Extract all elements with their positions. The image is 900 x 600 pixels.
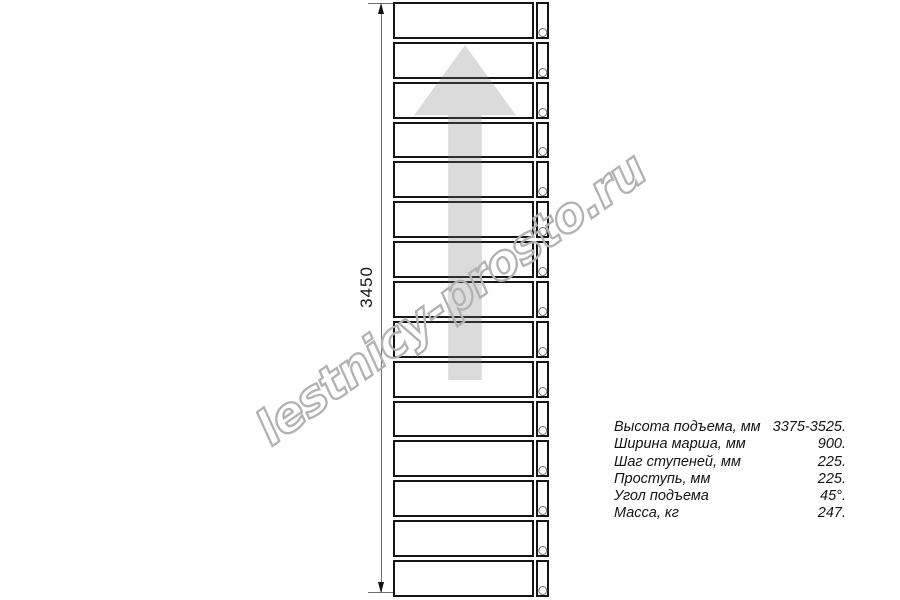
stringer-cell	[536, 520, 549, 557]
stairs-plan	[393, 2, 534, 597]
stringer-cell	[536, 480, 549, 517]
spec-value: 225.	[818, 454, 846, 471]
step-row	[393, 281, 534, 318]
stair-drawing-canvas: 3450 lestnicy-prosto.ru Высота подъема, …	[0, 0, 900, 600]
specs-table: Высота подъема, мм 3375-3525. Ширина мар…	[614, 419, 846, 523]
stringer-cell	[536, 2, 549, 39]
step-row	[393, 161, 534, 198]
spec-row: Ширина марша, мм 900.	[614, 436, 846, 453]
spec-row: Проступь, мм 225.	[614, 471, 846, 488]
stringer-cell	[536, 440, 549, 477]
step-row	[393, 440, 534, 477]
step-row	[393, 42, 534, 79]
stringer-cell	[536, 321, 549, 358]
step-row	[393, 122, 534, 159]
step-row	[393, 201, 534, 238]
fastener-circle	[538, 227, 547, 236]
step-row	[393, 401, 534, 438]
step-row	[393, 560, 534, 597]
step-row	[393, 82, 534, 119]
spec-label: Масса, кг	[614, 505, 679, 522]
stringer-cell	[536, 241, 549, 278]
spec-row: Масса, кг 247.	[614, 505, 846, 522]
spec-value: 45°.	[820, 488, 846, 505]
fastener-circle	[538, 546, 547, 555]
step-row	[393, 2, 534, 39]
spec-label: Угол подъема	[614, 488, 709, 505]
spec-label: Ширина марша, мм	[614, 436, 746, 453]
stringer-cell	[536, 82, 549, 119]
fastener-circle	[538, 267, 547, 276]
stringer-cell	[536, 401, 549, 438]
fastener-circle	[538, 307, 547, 316]
spec-label: Высота подъема, мм	[614, 419, 761, 436]
stringer-cell	[536, 122, 549, 159]
spec-row: Угол подъема 45°.	[614, 488, 846, 505]
fastener-circle	[538, 108, 547, 117]
stringer-cell	[536, 281, 549, 318]
stringer-cell	[536, 201, 549, 238]
fastener-circle	[538, 506, 547, 515]
fastener-circle	[538, 347, 547, 356]
step-row	[393, 321, 534, 358]
spec-row: Шаг ступеней, мм 225.	[614, 454, 846, 471]
fastener-circle	[538, 586, 547, 595]
spec-label: Шаг ступеней, мм	[614, 454, 741, 471]
spec-value: 3375-3525.	[773, 419, 846, 436]
fastener-circle	[538, 466, 547, 475]
spec-value: 900.	[818, 436, 846, 453]
step-row	[393, 361, 534, 398]
step-row	[393, 480, 534, 517]
spec-value: 247.	[818, 505, 846, 522]
fastener-circle	[538, 28, 547, 37]
fastener-circle	[538, 147, 547, 156]
stringer-cell	[536, 42, 549, 79]
fastener-circle	[538, 187, 547, 196]
fastener-circle	[538, 387, 547, 396]
spec-row: Высота подъема, мм 3375-3525.	[614, 419, 846, 436]
spec-label: Проступь, мм	[614, 471, 710, 488]
step-row	[393, 520, 534, 557]
dimension-label: 3450	[357, 266, 377, 308]
stringer-cell	[536, 560, 549, 597]
dimension-arrow-up-icon	[378, 3, 384, 14]
step-row	[393, 241, 534, 278]
stringer-cell	[536, 161, 549, 198]
stringer-cell	[536, 361, 549, 398]
spec-value: 225.	[818, 471, 846, 488]
stringer	[536, 2, 549, 597]
dimension-arrow-down-icon	[378, 582, 384, 593]
dimension-line	[381, 5, 382, 592]
fastener-circle	[538, 426, 547, 435]
fastener-circle	[538, 68, 547, 77]
